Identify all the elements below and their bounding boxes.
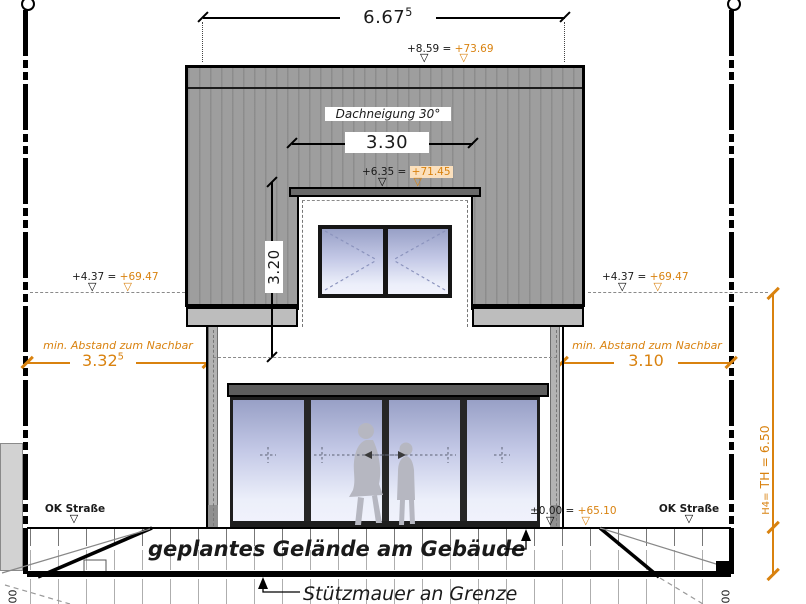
level-triangle-icon: ▽ [618,281,626,292]
level-triangle-icon: ▽ [378,176,386,187]
level-line-eaves-left [30,292,185,293]
glazing-sill [233,521,537,525]
planned-grade-label: geplantes Gelände am Gebäude [148,537,525,561]
elevation-drawing: 6.675 Dachneigung 30° 3.30 3.20 +8.59 = … [0,0,806,604]
level-triangle-icon: ▽ [420,52,428,63]
street-level-line [27,527,731,529]
hidden-line-wall-left [213,330,214,526]
level-triangles: ▽ ▽ [546,515,590,526]
level-triangles: ▽ ▽ [378,176,422,187]
dim-sup: 5 [405,6,413,19]
level-triangle-icon: ▽ [88,281,96,292]
dim-sup: 5 [118,352,124,363]
level-triangle-icon: ▽ [414,176,422,187]
level-line-eaves-right [588,292,768,293]
retaining-wall [27,571,731,577]
setback-right-value: 3.10 [614,351,678,370]
roof-ridge-line [188,87,582,89]
level-triangle-icon: ▽ [460,52,468,63]
level-triangle-icon: ▽ [582,515,590,526]
hidden-line-dormer-left [302,200,303,327]
level-triangles: ▽ ▽ [420,52,468,63]
retaining-wall-label: Stützmauer an Grenze [303,583,517,604]
extension-line [564,22,565,62]
ground-floor-glazing [230,397,540,528]
dormer-flat-roof [289,187,481,197]
level-triangle-icon: ▽ [124,281,132,292]
street-triangle-left: ▽ [67,513,81,524]
boundary-marker-left [21,0,35,11]
level-triangle-icon: ▽ [685,513,693,524]
cut-dim-right: 00 [720,590,733,604]
dim-dormer-width: 3.30 [345,132,429,153]
glazing-mullion [304,400,311,525]
window-mullion [383,229,388,294]
wall-height-prefix: H4= [761,493,772,515]
dim-value: 6.67 [363,7,405,28]
boundary-line-right [729,10,734,577]
hidden-line-floor [213,357,557,358]
wall-height-label: H4= TH = 6.50 [757,385,773,555]
eave-gutter-right [472,307,584,327]
level-triangles: ▽ ▽ [618,281,662,292]
wall-edge-right [562,327,564,528]
level-triangle-icon: ▽ [546,515,554,526]
boundary-marker-right [727,0,741,11]
glazing-mullion [382,400,389,525]
level-triangle-icon: ▽ [70,513,78,524]
level-triangles: ▽ ▽ [88,281,132,292]
dim-roof-height: 3.20 [265,241,283,293]
hidden-line-dormer-top [302,200,468,201]
glazing-mullion [460,400,467,525]
neighbor-wall [0,443,23,571]
boundary-line-left [23,10,28,578]
hidden-line-dormer-right [467,200,468,327]
dim-overall-width: 6.675 [340,6,436,28]
level-triangle-icon: ▽ [654,281,662,292]
canopy-fascia [227,383,549,397]
wall-height-value: TH = 6.50 [757,425,772,488]
setback-left-value: 3.325 [70,351,136,370]
cut-dim-left: 00 [7,590,20,604]
extension-line [202,22,203,62]
dormer-window [318,225,452,298]
street-triangle-right: ▽ [682,513,696,524]
dim-value: 3.32 [82,351,118,370]
roof-pitch-label: Dachneigung 30° [325,107,451,121]
hidden-line-wall-right [556,330,557,526]
eave-gutter-left [186,307,298,327]
